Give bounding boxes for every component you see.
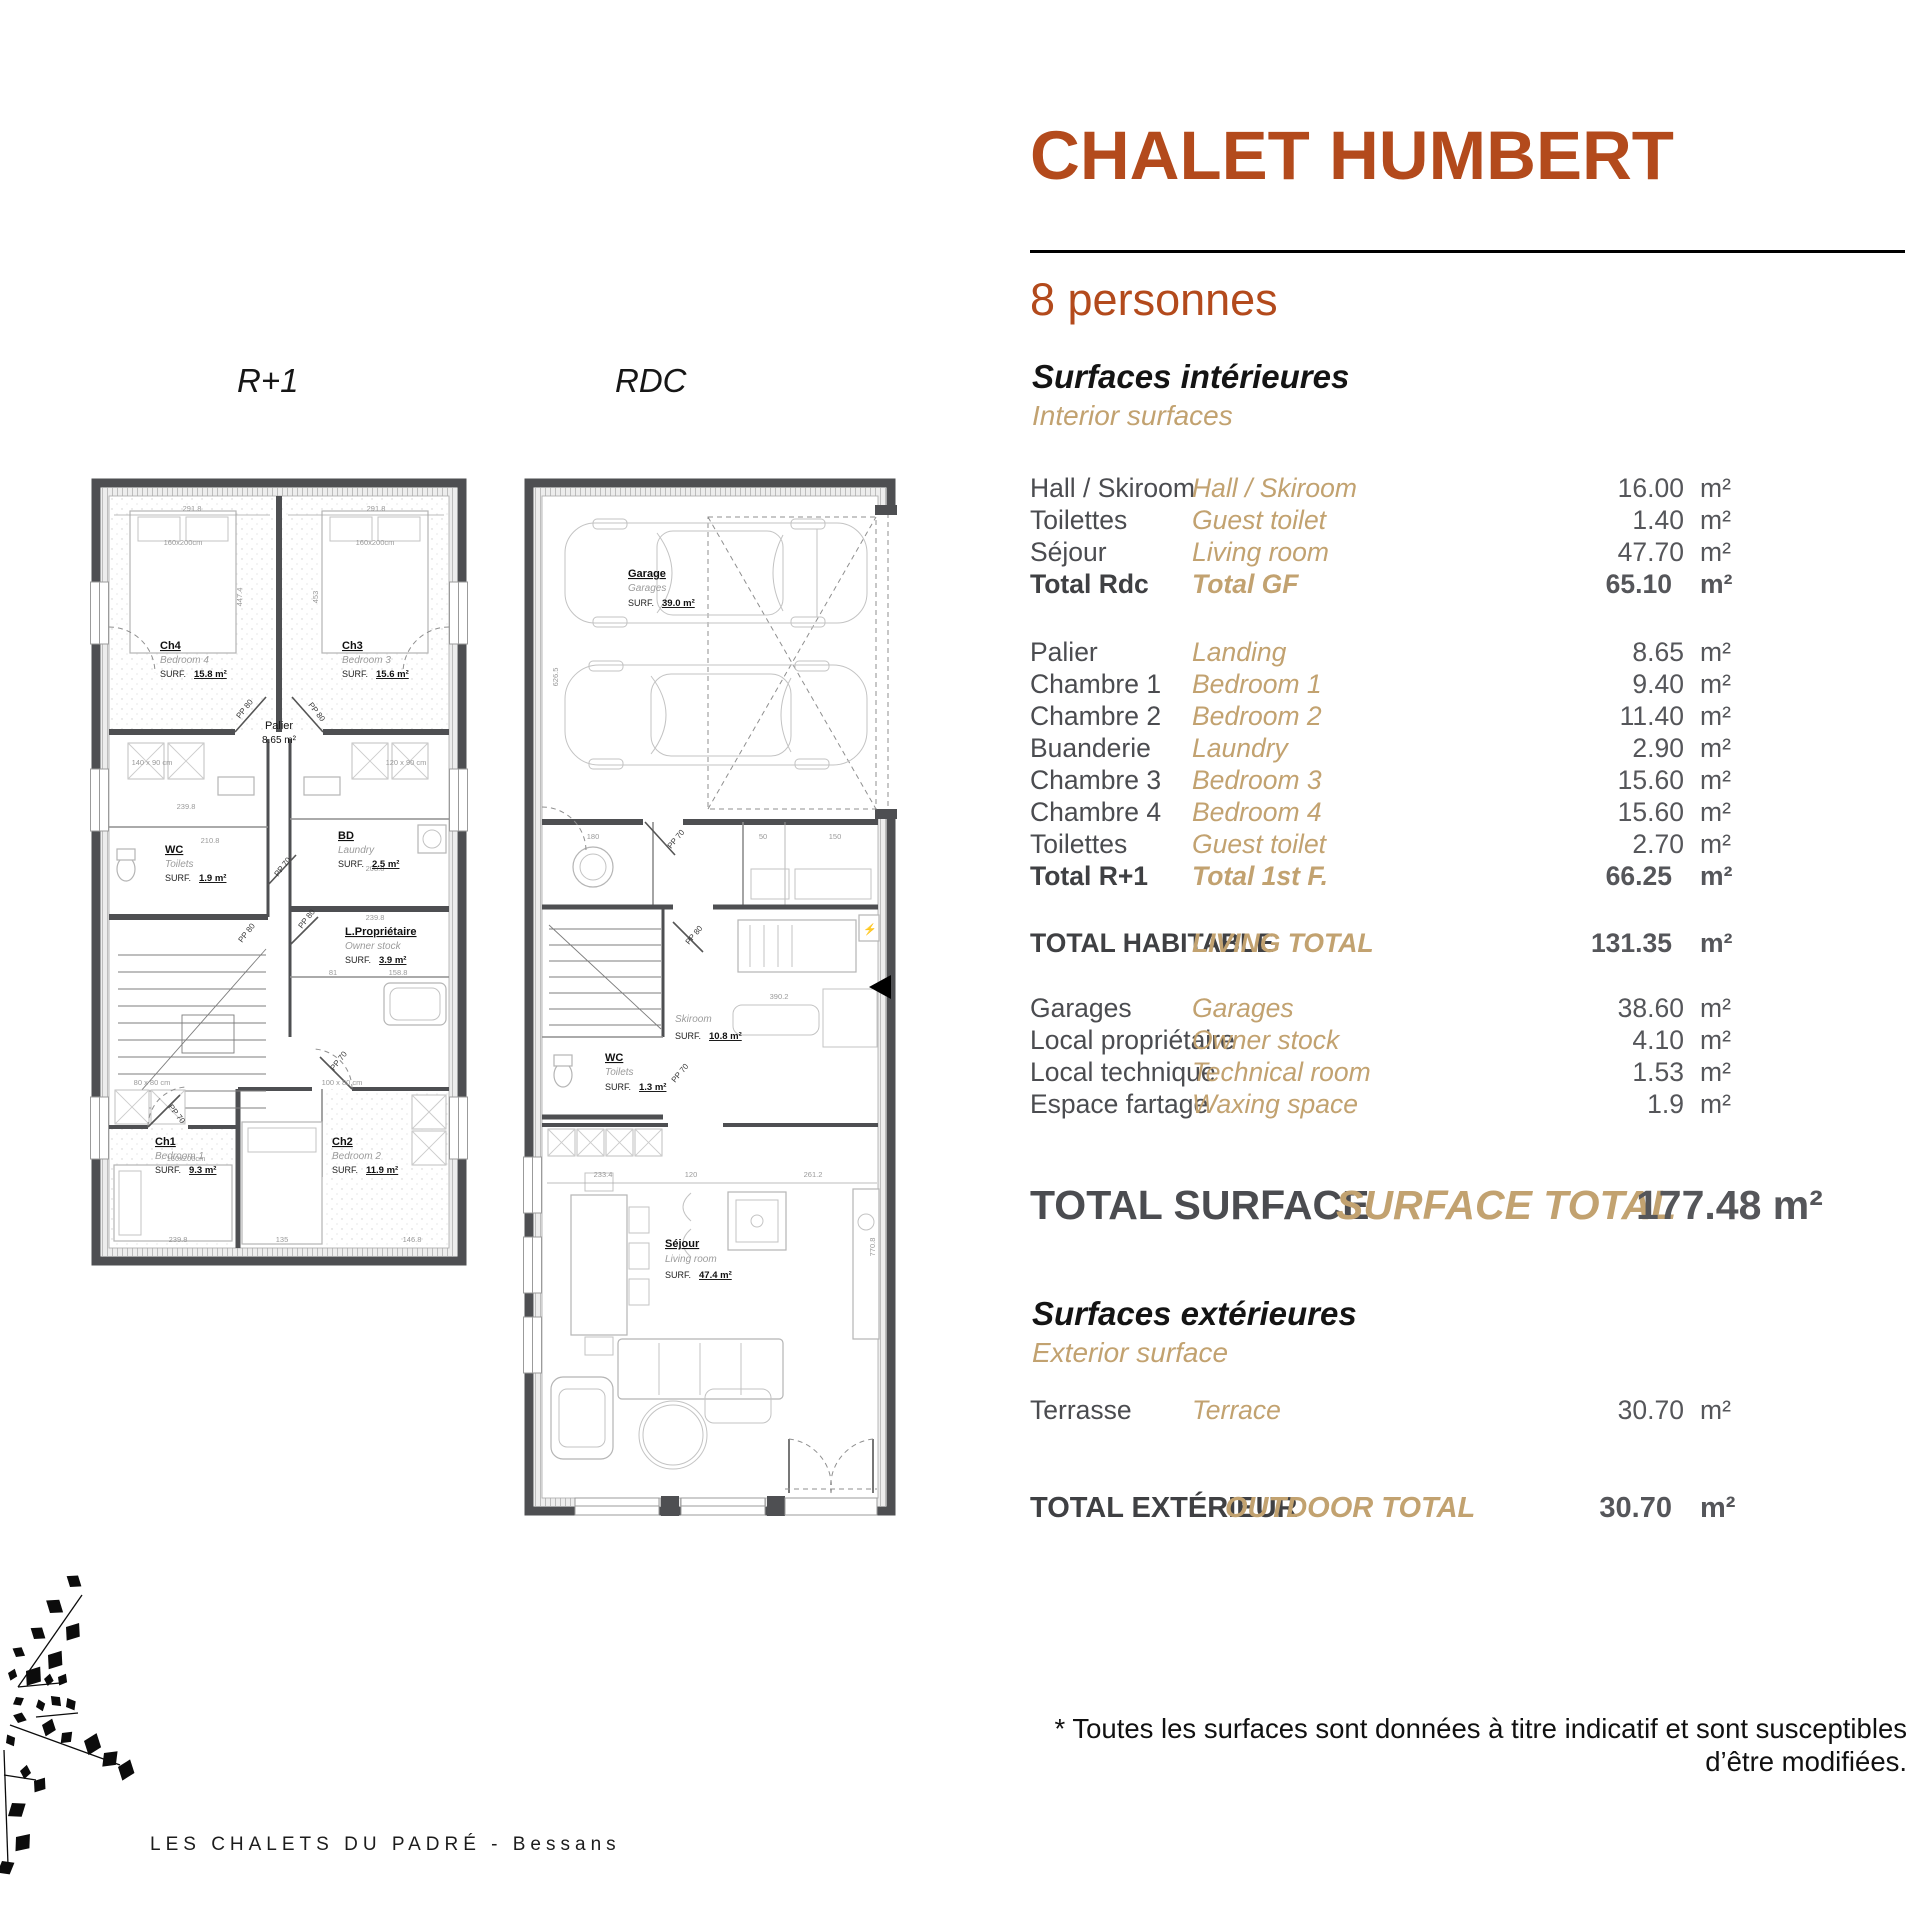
table-row: Toilettes Guest toilet 2.70 m² [1030,828,1778,860]
branch-leaves [0,1570,138,1879]
row-unit: m² [1672,569,1778,600]
row-label-fr: Buanderie [1030,733,1192,764]
svg-text:SURF.: SURF. [345,955,371,965]
row-label-fr: Séjour [1030,537,1192,568]
svg-text:261.2: 261.2 [804,1170,823,1179]
svg-text:WC: WC [605,1052,623,1064]
svg-text:SURF.: SURF. [628,598,654,608]
svg-text:120 x 90 cm: 120 x 90 cm [386,758,427,767]
svg-text:9.3 m²: 9.3 m² [189,1165,216,1176]
page-title: CHALET HUMBERT [1030,116,1674,195]
brand-footer: LES CHALETS DU PADRÉ - Bessans [150,1834,621,1856]
svg-text:135: 135 [276,1235,289,1244]
garage-label: Garage Garages SURF. 39.0 m² [628,568,695,609]
svg-text:SURF.: SURF. [675,1031,701,1041]
svg-text:Ch4: Ch4 [160,640,182,652]
table-r1: Palier Landing 8.65 m² Chambre 1 Bedroom… [1030,636,1778,892]
section-title-interior-fr: Surfaces intérieures [1032,358,1349,396]
row-label-fr: Local technique [1030,1057,1192,1088]
svg-text:Owner stock: Owner stock [345,941,402,952]
row-value: 4.10 [1544,1025,1684,1056]
svg-text:Ch1: Ch1 [155,1136,176,1148]
table-row-total: TOTAL EXTÉRIEUR OUTDOOR TOTAL 30.70 m² [1030,1489,1778,1527]
row-value: 1.9 [1544,1089,1684,1120]
row-value: 16.00 [1544,473,1684,504]
table-row: Séjour Living room 47.70 m² [1030,536,1778,568]
row-label-fr: Hall / Skiroom [1030,473,1192,504]
row-value: 1.53 [1544,1057,1684,1088]
row-value: 30.70 [1532,1492,1672,1525]
plan-label-r1: R+1 [237,362,298,400]
row-label-en: Hall / Skiroom [1192,473,1544,504]
row-label-fr: Espace fartage [1030,1089,1192,1120]
title-divider [1030,250,1905,253]
total-label-en: SURFACE TOTAL [1336,1182,1636,1229]
svg-text:15.8 m²: 15.8 m² [194,669,227,680]
surface-total-row: TOTAL SURFACE SURFACE TOTAL 177.48 m² [1030,1182,1778,1229]
table-annex: Garages Garages 38.60 m² Local propriéta… [1030,992,1778,1120]
svg-text:239.8: 239.8 [177,802,196,811]
svg-text:⚡: ⚡ [863,923,877,936]
row-unit: m² [1684,1395,1778,1426]
row-unit: m² [1672,928,1778,959]
branch-stems [4,1595,120,1865]
row-label-fr: Local propriétaire [1030,1025,1192,1056]
row-unit: m² [1684,505,1778,536]
svg-text:Laundry: Laundry [338,845,375,856]
table-row: Chambre 1 Bedroom 1 9.40 m² [1030,668,1778,700]
svg-text:150: 150 [829,832,842,841]
row-label-en: Terrace [1192,1395,1544,1426]
insulation [101,1248,457,1256]
table-row: Palier Landing 8.65 m² [1030,636,1778,668]
row-label-en: Guest toilet [1192,829,1544,860]
svg-text:81: 81 [329,968,337,977]
svg-text:WC: WC [165,844,183,856]
svg-text:1.3 m²: 1.3 m² [639,1082,666,1093]
row-label-en: Total 1st F. [1192,861,1532,892]
svg-text:3.9 m²: 3.9 m² [379,955,406,966]
svg-text:770.8: 770.8 [868,1238,877,1257]
row-value: 38.60 [1544,993,1684,1024]
svg-text:SURF.: SURF. [338,859,364,869]
svg-text:Palier: Palier [265,720,293,732]
row-label-en: Garages [1192,993,1544,1024]
exterior-total: TOTAL EXTÉRIEUR OUTDOOR TOTAL 30.70 m² [1030,1489,1778,1527]
table-row: Garages Garages 38.60 m² [1030,992,1778,1024]
table-row: Local propriétaire Owner stock 4.10 m² [1030,1024,1778,1056]
svg-text:L.Propriétaire: L.Propriétaire [345,926,417,938]
row-label-fr: Toilettes [1030,829,1192,860]
row-label-en: LIVING TOTAL [1192,928,1532,959]
row-label-en: Bedroom 1 [1192,669,1544,700]
row-unit: m² [1684,701,1778,732]
row-value: 2.70 [1544,829,1684,860]
row-label-en: Bedroom 3 [1192,765,1544,796]
row-unit: m² [1684,637,1778,668]
svg-text:11.9 m²: 11.9 m² [366,1165,398,1176]
svg-text:8.65 m²: 8.65 m² [262,735,297,746]
svg-text:291.8: 291.8 [367,504,386,513]
living-room-furniture [551,1173,879,1469]
row-label-en: Waxing space [1192,1089,1544,1120]
table-row: Hall / Skiroom Hall / Skiroom 16.00 m² [1030,472,1778,504]
svg-text:PP 80: PP 80 [236,921,257,944]
row-unit: m² [1684,829,1778,860]
table-row: Chambre 2 Bedroom 2 11.40 m² [1030,700,1778,732]
svg-text:239.8: 239.8 [169,1235,188,1244]
row-label-fr: Chambre 1 [1030,669,1192,700]
row-unit: m² [1684,1057,1778,1088]
table-row-total: TOTAL HABITABLE LIVING TOTAL 131.35 m² [1030,927,1778,959]
table-row: Buanderie Laundry 2.90 m² [1030,732,1778,764]
svg-text:SURF.: SURF. [155,1165,181,1175]
svg-text:Bedroom 4: Bedroom 4 [160,655,209,666]
row-value: 15.60 [1544,765,1684,796]
svg-text:10.8 m²: 10.8 m² [709,1031,742,1042]
row-label-en: Technical room [1192,1057,1544,1088]
row-label-fr: Terrasse [1030,1395,1192,1426]
svg-text:Bedroom 3: Bedroom 3 [342,655,391,666]
disclaimer-line-2: d’être modifiées. [987,1745,1907,1778]
insulation [534,488,886,496]
svg-text:Ch3: Ch3 [342,640,363,652]
svg-text:158.8: 158.8 [389,968,408,977]
wardrobes [542,1125,878,1156]
garage-door-opening [708,505,897,819]
row-label-fr: TOTAL EXTÉRIEUR [1030,1492,1225,1525]
row-label-en: Bedroom 4 [1192,797,1544,828]
svg-text:PP 70: PP 70 [670,1061,691,1084]
table-row-total: Total R+1 Total 1st F. 66.25 m² [1030,860,1778,892]
row-unit: m² [1672,1492,1778,1525]
svg-text:Séjour: Séjour [665,1238,700,1250]
row-label-fr: Garages [1030,993,1192,1024]
row-label-en: OUTDOOR TOTAL [1225,1492,1532,1525]
row-label-en: Living room [1192,537,1544,568]
row-value: 15.60 [1544,797,1684,828]
svg-text:291.8: 291.8 [183,504,202,513]
row-value: 65.10 [1532,569,1672,600]
row-value: 131.35 [1532,928,1672,959]
row-value: 9.40 [1544,669,1684,700]
section-title-exterior-en: Exterior surface [1032,1337,1228,1369]
disclaimer: * Toutes les surfaces sont données à tit… [987,1712,1907,1778]
bottom-openings [575,1439,877,1516]
row-unit: m² [1684,797,1778,828]
svg-text:Living room: Living room [665,1254,717,1265]
total-value: 177.48 m² [1636,1182,1823,1229]
table-rdc: Hall / Skiroom Hall / Skiroom 16.00 m² T… [1030,472,1778,600]
svg-text:Garages: Garages [628,583,666,594]
table-row: Chambre 4 Bedroom 4 15.60 m² [1030,796,1778,828]
svg-text:PP 70: PP 70 [666,827,687,850]
row-unit: m² [1684,669,1778,700]
row-label-en: Laundry [1192,733,1544,764]
skiroom-fittings: ⚡ [733,915,879,1047]
svg-text:39.0 m²: 39.0 m² [662,598,695,609]
svg-text:Bedroom 2: Bedroom 2 [332,1151,381,1162]
row-label-fr: Total Rdc [1030,569,1192,600]
row-label-fr: Chambre 2 [1030,701,1192,732]
svg-text:210.8: 210.8 [201,836,220,845]
svg-text:Bedroom 1: Bedroom 1 [155,1151,204,1162]
svg-text:453: 453 [311,591,320,604]
row-value: 2.90 [1544,733,1684,764]
insulation [101,488,457,496]
svg-text:Garage: Garage [628,568,666,580]
row-unit: m² [1672,861,1778,892]
svg-text:2.5 m²: 2.5 m² [372,859,399,870]
disclaimer-line-1: * Toutes les surfaces sont données à tit… [987,1712,1907,1745]
svg-text:626.5: 626.5 [551,668,560,687]
row-label-en: Owner stock [1192,1025,1544,1056]
row-label-en: Total GF [1192,569,1532,600]
plan-label-rdc: RDC [615,362,687,400]
table-row: Chambre 3 Bedroom 3 15.60 m² [1030,764,1778,796]
row-unit: m² [1684,537,1778,568]
svg-text:447.4: 447.4 [235,588,244,607]
row-value: 1.40 [1544,505,1684,536]
row-value: 30.70 [1544,1395,1684,1426]
floor-plan-rdc: Garage Garages SURF. 39.0 m² [523,477,897,1517]
svg-text:80 x 80 cm: 80 x 80 cm [134,1078,171,1087]
svg-text:239.8: 239.8 [366,913,385,922]
row-value: 11.40 [1544,701,1684,732]
row-unit: m² [1684,1089,1778,1120]
svg-text:390.2: 390.2 [770,992,789,1001]
row-label-en: Guest toilet [1192,505,1544,536]
table-row-total: Total Rdc Total GF 65.10 m² [1030,568,1778,600]
row-value: 8.65 [1544,637,1684,668]
svg-text:146.8: 146.8 [403,1235,422,1244]
table-row: Toilettes Guest toilet 1.40 m² [1030,504,1778,536]
svg-text:160x200cm: 160x200cm [356,538,395,547]
table-row: Local technique Technical room 1.53 m² [1030,1056,1778,1088]
svg-text:120: 120 [685,1170,698,1179]
capacity: 8 personnes [1030,274,1278,326]
row-label-fr: Chambre 4 [1030,797,1192,828]
svg-text:233.4: 233.4 [594,1170,613,1179]
svg-text:Ch2: Ch2 [332,1136,353,1148]
table-row: Terrasse Terrace 30.70 m² [1030,1394,1778,1426]
svg-text:BD: BD [338,830,354,842]
svg-text:15.6 m²: 15.6 m² [376,669,409,680]
wc-room: WC Toilets SURF. 1.3 m² [542,1037,666,1117]
door-labels: PP 70 PP 80 PP 70 [666,827,705,1084]
row-label-fr: TOTAL HABITABLE [1030,928,1192,959]
svg-text:SURF.: SURF. [605,1082,631,1092]
svg-text:SURF.: SURF. [342,669,368,679]
row-unit: m² [1684,473,1778,504]
table-row: Espace fartage Waxing space 1.9 m² [1030,1088,1778,1120]
svg-text:47.4 m²: 47.4 m² [699,1270,732,1281]
svg-text:Toilets: Toilets [605,1067,634,1078]
row-unit: m² [1684,765,1778,796]
svg-text:SURF.: SURF. [665,1270,691,1280]
row-label-en: Landing [1192,637,1544,668]
svg-text:SURF.: SURF. [165,873,191,883]
svg-text:1.9 m²: 1.9 m² [199,873,226,884]
floor-plan-r1: 291.8 291.8 447.4 453 239.8 210.8 208.8 … [90,477,468,1267]
sejour-label: Séjour Living room SURF. 47.4 m² [665,1238,732,1281]
svg-text:140 x 90 cm: 140 x 90 cm [132,758,173,767]
row-unit: m² [1684,1025,1778,1056]
row-unit: m² [1684,993,1778,1024]
total-label-fr: TOTAL SURFACE [1030,1182,1336,1229]
row-label-fr: Total R+1 [1030,861,1192,892]
section-title-exterior-fr: Surfaces extérieures [1032,1295,1357,1333]
svg-text:Skiroom: Skiroom [675,1014,712,1025]
svg-text:50: 50 [759,832,767,841]
row-label-fr: Palier [1030,637,1192,668]
branch-logo [0,1565,142,1883]
row-value: 66.25 [1532,861,1672,892]
svg-text:180: 180 [587,832,600,841]
row-label-en: Bedroom 2 [1192,701,1544,732]
svg-text:160x200cm: 160x200cm [164,538,203,547]
skiroom-label: Skiroom SURF. 10.8 m² [675,1014,742,1042]
row-label-fr: Toilettes [1030,505,1192,536]
svg-text:SURF.: SURF. [332,1165,358,1175]
svg-text:Toilets: Toilets [165,859,194,870]
svg-text:SURF.: SURF. [160,669,186,679]
table-exterior: Terrasse Terrace 30.70 m² [1030,1394,1778,1426]
svg-text:100 x 80 cm: 100 x 80 cm [322,1078,363,1087]
row-label-fr: Chambre 3 [1030,765,1192,796]
row-value: 47.70 [1544,537,1684,568]
row-unit: m² [1684,733,1778,764]
living-total: TOTAL HABITABLE LIVING TOTAL 131.35 m² [1030,927,1778,959]
section-title-interior-en: Interior surfaces [1032,400,1233,432]
